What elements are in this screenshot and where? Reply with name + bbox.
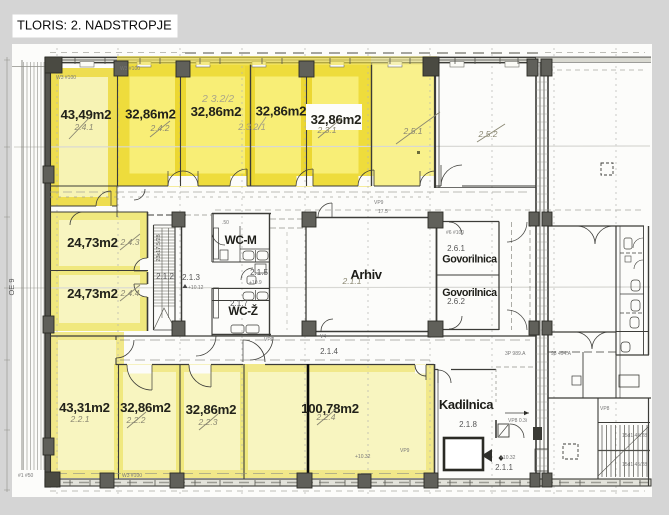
svg-text:2.6.1: 2.6.1	[447, 244, 465, 253]
svg-text:32,86m2: 32,86m2	[125, 107, 176, 122]
svg-text:2.4.2: 2.4.2	[150, 123, 170, 133]
svg-text:2.1.1: 2.1.1	[342, 276, 362, 286]
svg-text:V4: V4	[320, 334, 326, 340]
svg-text:15d1.45/28: 15d1.45/28	[622, 462, 647, 468]
svg-text:.50: .50	[222, 220, 229, 226]
svg-text:WC-Ž: WC-Ž	[228, 304, 257, 318]
svg-text:2.1.8: 2.1.8	[459, 420, 477, 429]
svg-text:2.1.1: 2.1.1	[495, 463, 513, 472]
svg-text:2.2.3: 2.2.3	[198, 417, 218, 427]
svg-text:+10.12: +10.12	[188, 285, 204, 291]
svg-text:Govorilnica: Govorilnica	[442, 254, 498, 266]
svg-text:3P 989.A: 3P 989.A	[505, 351, 526, 357]
svg-text:#6 #100: #6 #100	[446, 230, 464, 236]
svg-text:VP8: VP8	[600, 406, 610, 412]
svg-text:#1 #50: #1 #50	[18, 473, 34, 479]
svg-text:43,31m2: 43,31m2	[59, 400, 110, 415]
svg-text:VP9: VP9	[374, 200, 384, 206]
svg-text:32,86m2: 32,86m2	[191, 104, 242, 119]
svg-text:2.1.2: 2.1.2	[156, 272, 174, 281]
svg-text:+10.32: +10.32	[355, 454, 371, 460]
svg-text:2.5.1: 2.5.1	[403, 126, 423, 136]
svg-text:2.3.1: 2.3.1	[317, 125, 337, 135]
svg-text:OE 9: OE 9	[7, 278, 16, 295]
svg-text:W3 #100: W3 #100	[56, 75, 76, 81]
svg-text:24,73m2: 24,73m2	[67, 286, 118, 301]
svg-text:2.1.4: 2.1.4	[320, 347, 338, 356]
svg-text:+10.32: +10.32	[500, 455, 516, 461]
svg-text:VP9: VP9	[264, 337, 274, 343]
svg-text:43,49m2: 43,49m2	[61, 107, 112, 122]
svg-text:98 494.A: 98 494.A	[551, 351, 572, 357]
svg-text:VP9: VP9	[400, 448, 410, 454]
svg-text:W3 #100: W3 #100	[122, 473, 142, 479]
svg-text:TLORIS: 2. NADSTROPJE: TLORIS: 2. NADSTROPJE	[17, 18, 172, 33]
svg-text:2.2.4: 2.2.4	[316, 412, 336, 422]
svg-text:Kadilnica: Kadilnica	[439, 397, 494, 412]
svg-text:23x17.5/28: 23x17.5/28	[156, 234, 162, 261]
svg-text:32,86m2: 32,86m2	[256, 104, 307, 119]
svg-text:2.2.2: 2.2.2	[126, 415, 146, 425]
svg-text:2.6.2: 2.6.2	[447, 297, 465, 306]
svg-text:W3 #100: W3 #100	[120, 66, 140, 72]
svg-text:+10.9: +10.9	[249, 280, 262, 286]
svg-text:2.1.5: 2.1.5	[250, 268, 268, 277]
svg-text:15d1.45/28: 15d1.45/28	[622, 433, 647, 439]
svg-text:VP8 0.3i: VP8 0.3i	[508, 418, 527, 424]
svg-text:24,73m2: 24,73m2	[67, 235, 118, 250]
svg-text:WC-M: WC-M	[225, 233, 257, 247]
svg-text:17.5: 17.5	[378, 209, 388, 215]
svg-text:32,86m2: 32,86m2	[186, 402, 237, 417]
svg-text:2.2.1: 2.2.1	[70, 414, 90, 424]
svg-text:2.1.3: 2.1.3	[182, 273, 200, 282]
